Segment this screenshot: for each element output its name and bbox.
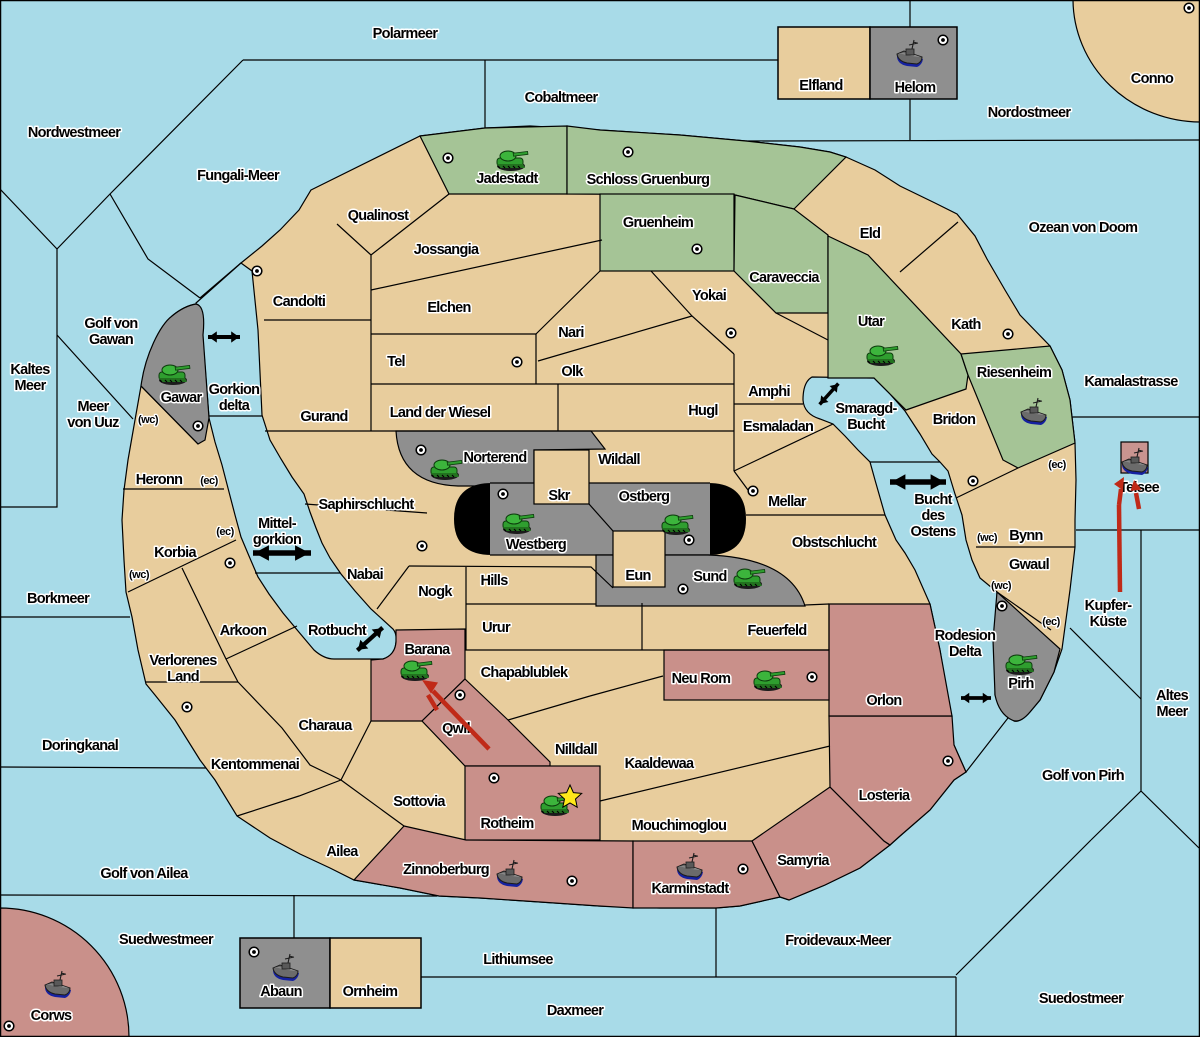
svg-text:(ec): (ec) [216,526,234,538]
svg-text:(ec): (ec) [1048,459,1066,471]
svg-text:Arkoon: Arkoon [220,623,267,639]
svg-text:Wildall: Wildall [598,452,640,468]
svg-text:Candolti: Candolti [273,294,325,310]
svg-text:Westberg: Westberg [506,537,566,553]
svg-text:Ostberg: Ostberg [619,489,670,505]
svg-text:Hills: Hills [480,573,508,589]
svg-text:Kentommenai: Kentommenai [211,757,299,773]
svg-text:Samyria: Samyria [777,853,830,869]
svg-text:Daxmeer: Daxmeer [547,1003,604,1019]
svg-text:Jossangia: Jossangia [414,242,480,258]
svg-text:delta: delta [219,398,251,414]
svg-text:Doringkanal: Doringkanal [42,738,118,754]
svg-text:Bucht: Bucht [914,492,952,508]
svg-text:Meer: Meer [14,378,46,394]
svg-text:Orlon: Orlon [866,693,901,709]
svg-text:Suedostmeer: Suedostmeer [1039,991,1124,1007]
svg-text:Gurand: Gurand [300,409,347,425]
svg-text:Cobaltmeer: Cobaltmeer [525,90,599,106]
svg-text:Golf von Ailea: Golf von Ailea [100,866,189,882]
svg-text:Ornheim: Ornheim [343,984,398,1000]
svg-text:Losteria: Losteria [859,788,911,804]
svg-text:Delta: Delta [949,644,983,660]
svg-text:Abaun: Abaun [260,984,302,1000]
svg-text:(ec): (ec) [1042,616,1060,628]
svg-text:Mouchimoglou: Mouchimoglou [632,818,727,834]
svg-text:Norterend: Norterend [464,450,527,466]
svg-text:Gorkion: Gorkion [209,382,260,398]
svg-text:Qualinost: Qualinost [348,208,409,224]
svg-text:Suedwestmeer: Suedwestmeer [119,932,214,948]
svg-text:Kamalastrasse: Kamalastrasse [1084,374,1178,390]
svg-text:Gawar: Gawar [161,390,203,406]
svg-text:Rotheim: Rotheim [480,816,533,832]
svg-text:Elchen: Elchen [427,300,470,316]
svg-text:gorkion: gorkion [253,532,301,548]
svg-text:Conno: Conno [1131,71,1174,87]
svg-text:Amphi: Amphi [748,384,790,400]
svg-text:Land: Land [167,669,199,685]
svg-text:Meer: Meer [77,399,109,415]
svg-text:Riesenheim: Riesenheim [977,365,1051,381]
svg-text:Bynn: Bynn [1009,528,1042,544]
svg-text:Skr: Skr [548,488,570,504]
svg-text:Schloss Gruenburg: Schloss Gruenburg [587,172,710,188]
svg-text:Gwaul: Gwaul [1009,557,1049,573]
svg-text:Eld: Eld [860,226,880,242]
svg-text:Polarmeer: Polarmeer [373,26,439,42]
svg-text:Zinnoberburg: Zinnoberburg [403,862,489,878]
svg-text:von Uuz: von Uuz [67,415,119,431]
svg-text:Kaltes: Kaltes [10,362,50,378]
svg-text:Golf von: Golf von [84,316,137,332]
svg-text:Yokai: Yokai [692,288,726,304]
svg-text:Altes: Altes [1156,688,1189,704]
svg-text:Eun: Eun [625,568,650,584]
svg-text:(ec): (ec) [200,475,218,487]
svg-text:Charaua: Charaua [298,718,353,734]
svg-text:Ailea: Ailea [326,844,359,860]
svg-text:Jadestadt: Jadestadt [476,171,538,187]
svg-text:Verlorenes: Verlorenes [149,653,217,669]
svg-text:Utar: Utar [858,314,885,330]
svg-text:Sund: Sund [693,569,726,585]
svg-text:Obstschlucht: Obstschlucht [792,535,877,551]
svg-text:Bridon: Bridon [933,412,976,428]
svg-text:Nogk: Nogk [418,584,453,600]
svg-text:Ostens: Ostens [911,524,957,540]
svg-text:Bucht: Bucht [847,417,885,433]
svg-text:Gawan: Gawan [89,332,133,348]
svg-text:Smaragd-: Smaragd- [835,401,897,417]
svg-text:Heronn: Heronn [136,472,183,488]
svg-text:Nordwestmeer: Nordwestmeer [28,125,121,141]
svg-text:Pirh: Pirh [1008,676,1033,692]
svg-text:Gruenheim: Gruenheim [623,215,693,231]
svg-text:Caraveccia: Caraveccia [749,270,820,286]
svg-text:Tel: Tel [387,354,405,370]
svg-text:Helom: Helom [895,80,936,96]
svg-text:Korbia: Korbia [154,545,197,561]
svg-text:(wc): (wc) [991,580,1012,592]
svg-text:Feuerfeld: Feuerfeld [748,623,807,639]
svg-text:Fungali-Meer: Fungali-Meer [197,168,280,184]
svg-text:Chapablublek: Chapablublek [481,665,569,681]
svg-text:Nabai: Nabai [347,567,383,583]
svg-text:Küste: Küste [1090,614,1127,630]
svg-text:Barana: Barana [405,642,452,658]
svg-text:Froidevaux-Meer: Froidevaux-Meer [785,933,892,949]
svg-text:(wc): (wc) [977,532,998,544]
svg-text:Saphirschlucht: Saphirschlucht [319,497,415,513]
svg-text:Urur: Urur [482,620,511,636]
svg-text:Esmaladan: Esmaladan [743,419,813,435]
svg-text:Mittel-: Mittel- [258,516,297,532]
svg-text:Kupfer-: Kupfer- [1085,598,1133,614]
svg-text:Hugl: Hugl [688,403,717,419]
svg-text:Rotbucht: Rotbucht [308,623,367,639]
svg-text:Elfland: Elfland [799,78,842,94]
svg-text:(wc): (wc) [138,414,159,426]
svg-text:Corws: Corws [31,1008,72,1024]
svg-text:Karminstadt: Karminstadt [652,881,730,897]
svg-text:(wc): (wc) [129,569,150,581]
svg-text:Lithiumsee: Lithiumsee [483,952,553,968]
svg-text:Ozean von Doom: Ozean von Doom [1029,220,1138,236]
svg-text:Meer: Meer [1156,704,1188,720]
svg-text:Mellar: Mellar [768,494,807,510]
svg-text:Nilldall: Nilldall [555,742,597,758]
svg-text:Sottovia: Sottovia [393,794,446,810]
svg-text:Nari: Nari [558,325,583,341]
svg-text:Neu Rom: Neu Rom [672,671,731,687]
svg-text:Nordostmeer: Nordostmeer [988,105,1072,121]
svg-text:Rodesion: Rodesion [935,628,995,644]
svg-text:Kaaldewaa: Kaaldewaa [625,756,695,772]
svg-text:Land der Wiesel: Land der Wiesel [390,405,491,421]
svg-text:Borkmeer: Borkmeer [27,591,90,607]
svg-text:Golf von Pirh: Golf von Pirh [1042,768,1124,784]
svg-text:Olk: Olk [561,364,584,380]
svg-text:Kath: Kath [951,317,980,333]
svg-text:des: des [922,508,946,524]
